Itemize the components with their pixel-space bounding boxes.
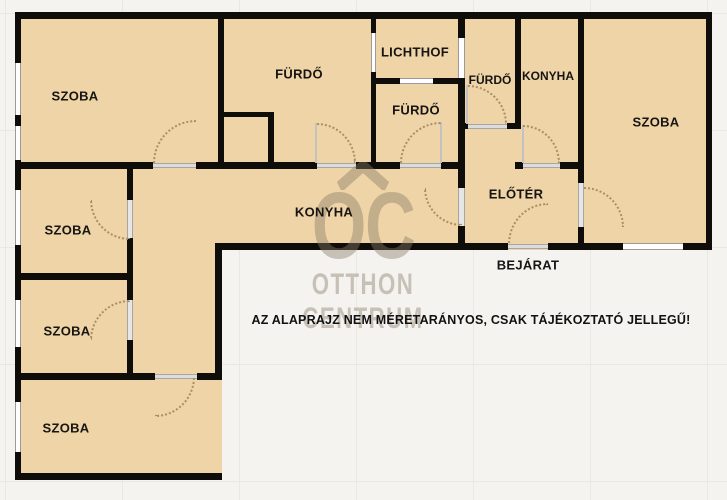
- watermark-brand-line1: OTTHON: [302, 270, 423, 300]
- wall: [515, 12, 521, 129]
- wall: [356, 162, 400, 169]
- wall: [15, 12, 712, 19]
- door-threshold: [153, 163, 196, 168]
- wall: [218, 112, 274, 117]
- floor-plan-canvas: OC OTTHON CENTRUM SZOBA FÜRDŐ LICHTHOF F…: [0, 0, 727, 500]
- wall: [215, 243, 222, 380]
- entrance-door-threshold: [508, 244, 548, 249]
- wall: [706, 12, 712, 250]
- wall: [196, 162, 317, 169]
- window: [371, 33, 376, 72]
- door-threshold: [468, 124, 507, 129]
- room-label-konyha-main: KONYHA: [295, 205, 353, 220]
- room-label-szoba-right: SZOBA: [633, 115, 680, 130]
- wall: [515, 162, 523, 169]
- wall: [15, 473, 222, 480]
- window: [623, 243, 683, 250]
- door-threshold: [523, 163, 560, 168]
- window: [400, 78, 433, 84]
- room-label-furdo-middle: FÜRDŐ: [392, 103, 440, 118]
- window: [15, 190, 21, 245]
- window: [15, 63, 21, 115]
- window: [15, 402, 21, 452]
- door-threshold: [317, 163, 356, 168]
- wall: [268, 112, 274, 169]
- room-label-szoba-bottom: SZOBA: [43, 421, 90, 436]
- wall: [15, 373, 155, 380]
- room-label-eloter: ELŐTÉR: [489, 187, 544, 202]
- wall: [548, 243, 623, 250]
- entrance-label: BEJÁRAT: [497, 258, 560, 273]
- room-label-lichthof: LICHTHOF: [381, 45, 449, 60]
- window: [458, 38, 465, 78]
- disclaimer-text: AZ ALAPRAJZ NEM MÉRETARÁNYOS, CSAK TÁJÉK…: [251, 313, 690, 327]
- wall: [15, 273, 133, 280]
- apartment-area-left-wing: [15, 250, 222, 480]
- door-threshold: [400, 163, 441, 168]
- room-label-szoba-top-left: SZOBA: [52, 89, 99, 104]
- room-label-szoba-left-2: SZOBA: [45, 223, 92, 238]
- wall: [127, 162, 133, 380]
- wall: [218, 12, 224, 169]
- room-label-furdo-large: FÜRDŐ: [275, 67, 323, 82]
- room-label-konyha-top: KONYHA: [522, 69, 574, 83]
- window: [15, 126, 21, 160]
- room-label-furdo-small: FÜRDŐ: [469, 73, 512, 87]
- room-label-szoba-left-3: SZOBA: [44, 324, 91, 339]
- window: [15, 300, 21, 347]
